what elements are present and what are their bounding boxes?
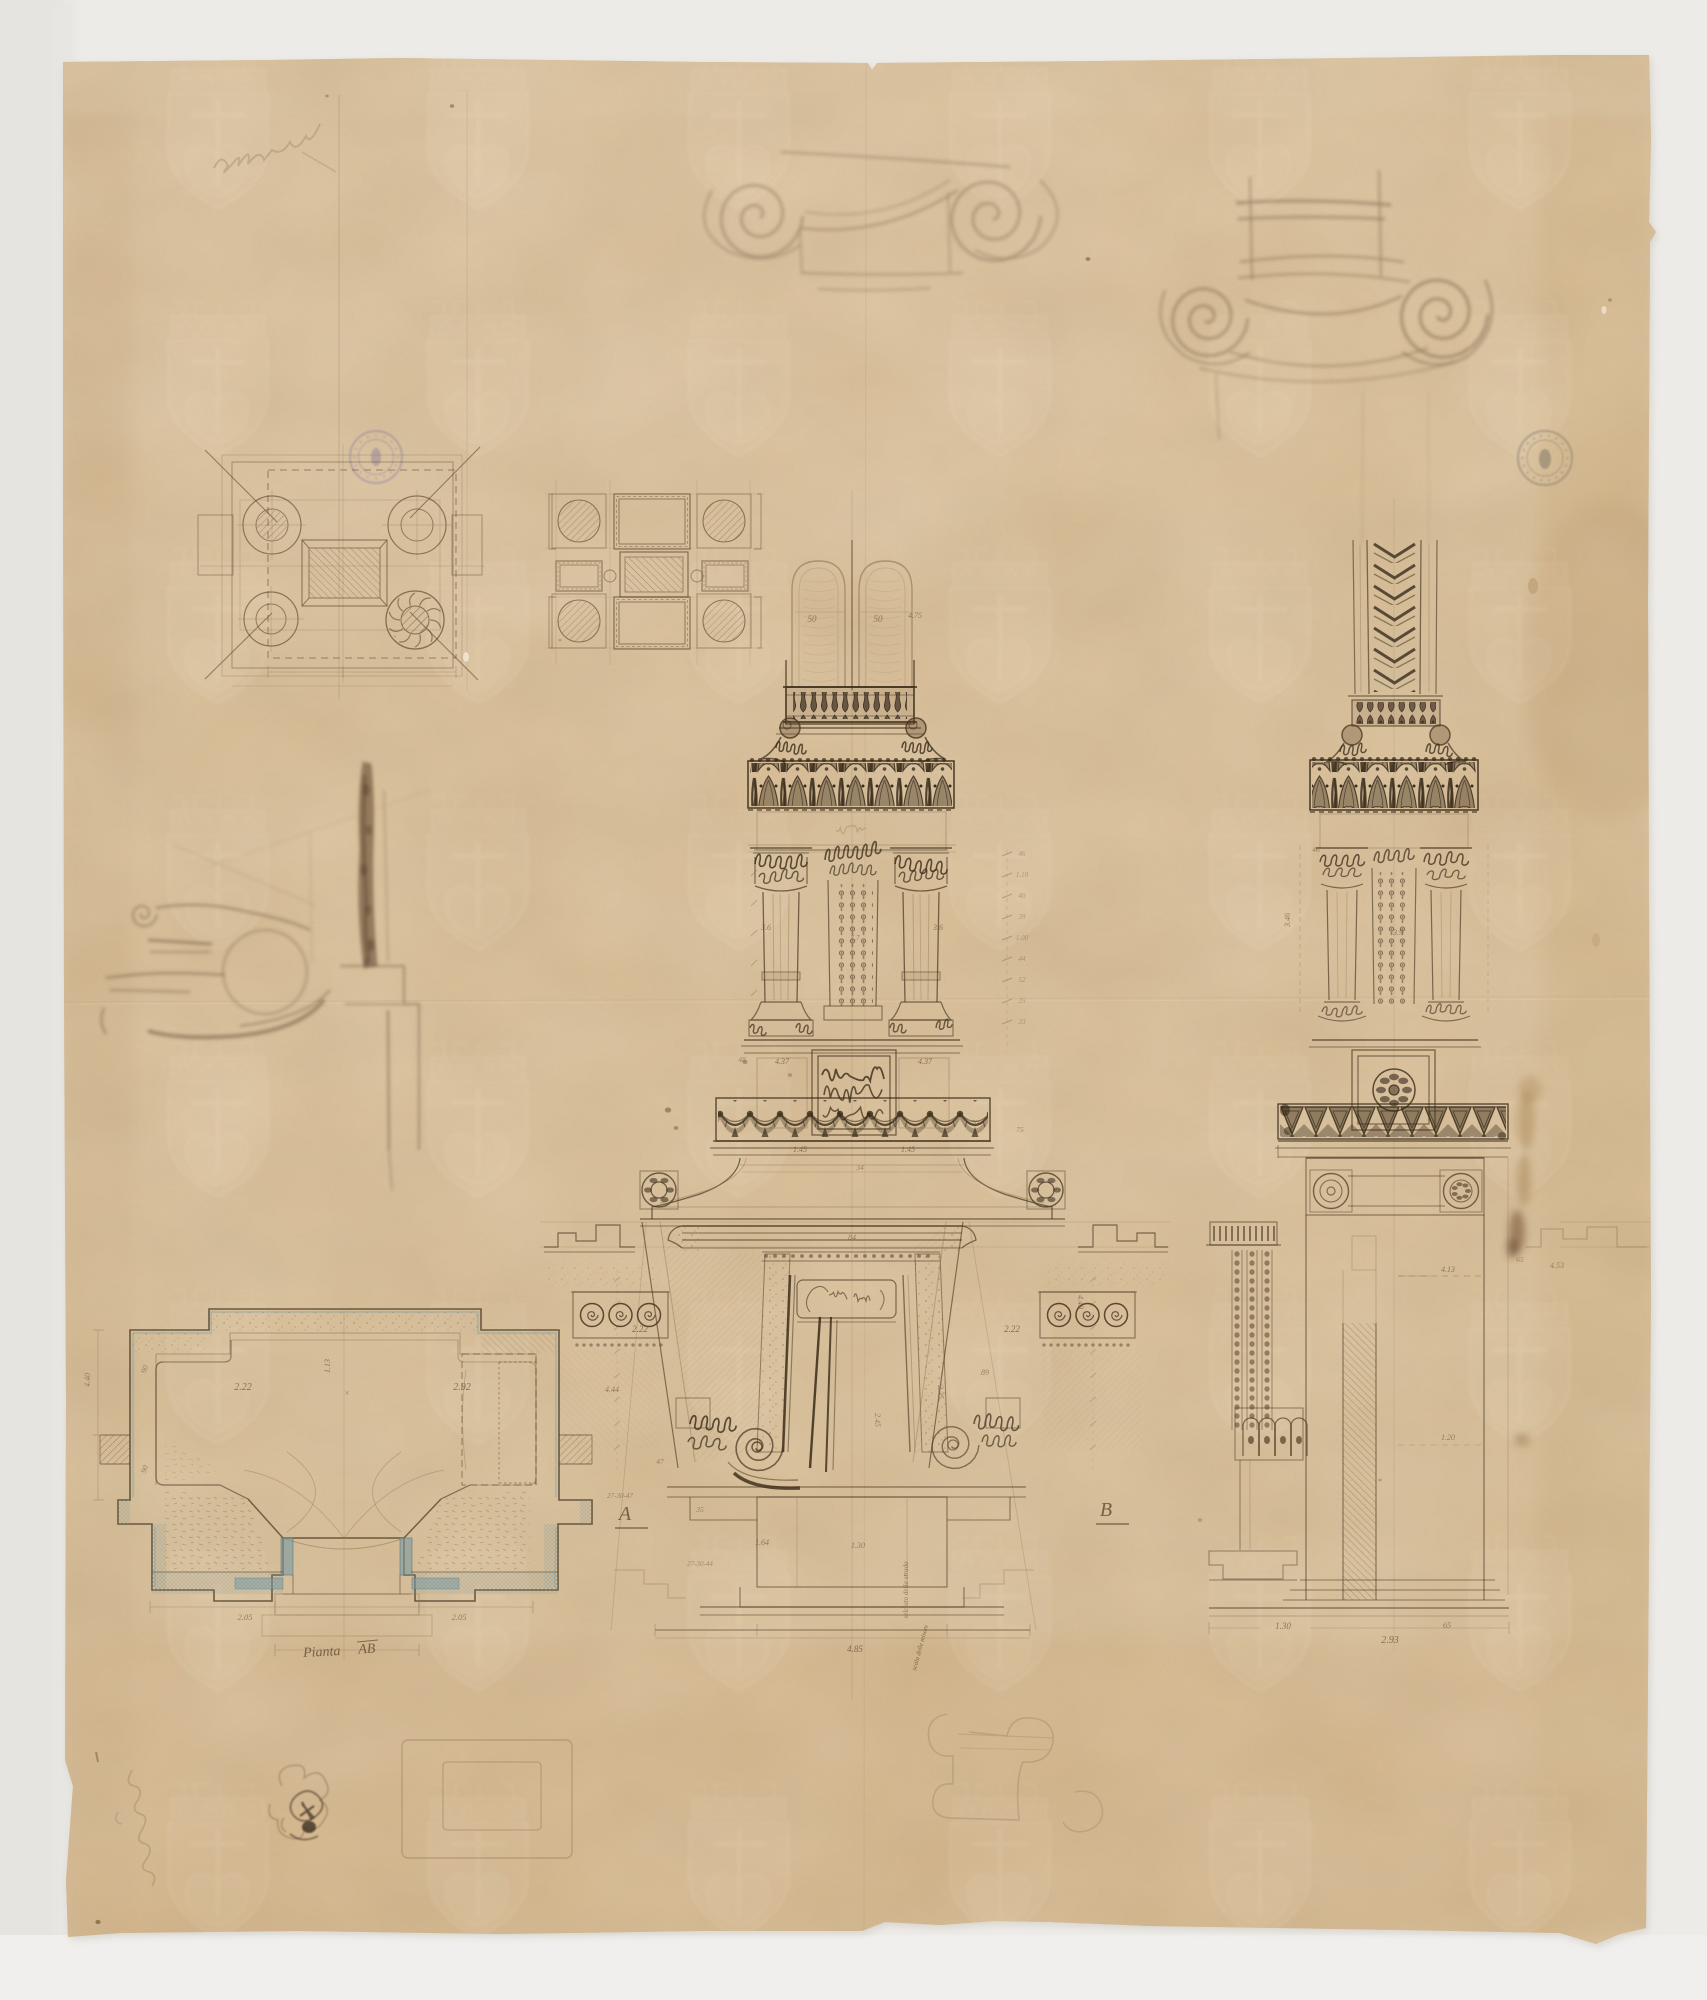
svg-text:3.9: 3.9 (1392, 928, 1403, 937)
svg-text:89: 89 (981, 1368, 989, 1377)
svg-text:34: 34 (855, 1163, 864, 1172)
svg-text:·: · (394, 632, 397, 643)
svg-text:4.37: 4.37 (775, 1057, 790, 1066)
svg-text:3.6: 3.6 (932, 923, 943, 932)
svg-text:65: 65 (1443, 1621, 1451, 1630)
svg-text:2.92: 2.92 (453, 1382, 471, 1393)
svg-text:84: 84 (848, 1233, 856, 1242)
svg-text:4.49: 4.49 (1076, 1295, 1085, 1309)
svg-text:75: 75 (1016, 1125, 1024, 1134)
svg-text:2.05: 2.05 (452, 1612, 467, 1622)
svg-text:1.00: 1.00 (1016, 934, 1029, 942)
svg-text:2.22: 2.22 (632, 1324, 648, 1334)
svg-text:4.44: 4.44 (605, 1385, 619, 1394)
svg-text:1.45: 1.45 (901, 1145, 915, 1154)
svg-text:1.13: 1.13 (323, 1359, 332, 1373)
svg-text:B: B (1100, 1499, 1112, 1521)
svg-text:47: 47 (656, 1457, 664, 1466)
svg-text:46: 46 (1019, 850, 1027, 858)
svg-text:1.45: 1.45 (793, 1145, 807, 1154)
svg-text:50: 50 (808, 614, 818, 624)
svg-text:39: 39 (1018, 913, 1027, 921)
svg-text:1.20: 1.20 (1441, 1433, 1455, 1442)
svg-text:1.64: 1.64 (755, 1538, 769, 1547)
svg-text:A: A (617, 1503, 632, 1525)
svg-text:1.30: 1.30 (1275, 1621, 1291, 1631)
svg-text:4.75: 4.75 (908, 611, 922, 620)
svg-text:23: 23 (1019, 1018, 1027, 1026)
svg-text:3.6: 3.6 (760, 923, 771, 932)
svg-text:2.93: 2.93 (1381, 1635, 1399, 1646)
svg-text:7.7: 7.7 (850, 933, 860, 942)
svg-text:27-30-44: 27-30-44 (687, 1560, 713, 1568)
svg-text:44: 44 (1019, 955, 1027, 963)
svg-text:selciato della strada: selciato della strada (902, 1561, 910, 1619)
svg-text:4.40: 4.40 (83, 1373, 92, 1387)
svg-text:2.22: 2.22 (234, 1382, 252, 1393)
svg-text:46: 46 (1312, 845, 1320, 854)
svg-text:50: 50 (874, 614, 884, 624)
svg-text:1.10: 1.10 (1016, 871, 1029, 879)
svg-text:×: × (344, 1388, 350, 1398)
svg-text:1.30: 1.30 (851, 1541, 865, 1550)
svg-text:25: 25 (1019, 997, 1027, 1005)
svg-text:27-30-47: 27-30-47 (607, 1492, 633, 1500)
svg-text:4.13: 4.13 (1441, 1265, 1455, 1274)
svg-text:2.35: 2.35 (936, 1385, 945, 1399)
svg-text:4.37: 4.37 (918, 1057, 933, 1066)
svg-text:35: 35 (695, 1505, 704, 1514)
svg-text:65: 65 (1516, 1255, 1524, 1264)
svg-text:2.22: 2.22 (1004, 1324, 1020, 1334)
svg-text:40: 40 (1019, 892, 1027, 900)
svg-text:2.05: 2.05 (238, 1612, 253, 1622)
svg-text:AB: AB (357, 1642, 376, 1658)
svg-text:2.45: 2.45 (873, 1413, 882, 1427)
svg-text:4.53: 4.53 (1550, 1261, 1564, 1270)
svg-text:Pianta: Pianta (302, 1644, 341, 1661)
svg-text:3.46: 3.46 (1283, 913, 1292, 928)
svg-text:4.85: 4.85 (847, 1644, 863, 1654)
svg-text:52: 52 (1019, 976, 1027, 984)
svg-text:70: 70 (971, 1118, 979, 1127)
